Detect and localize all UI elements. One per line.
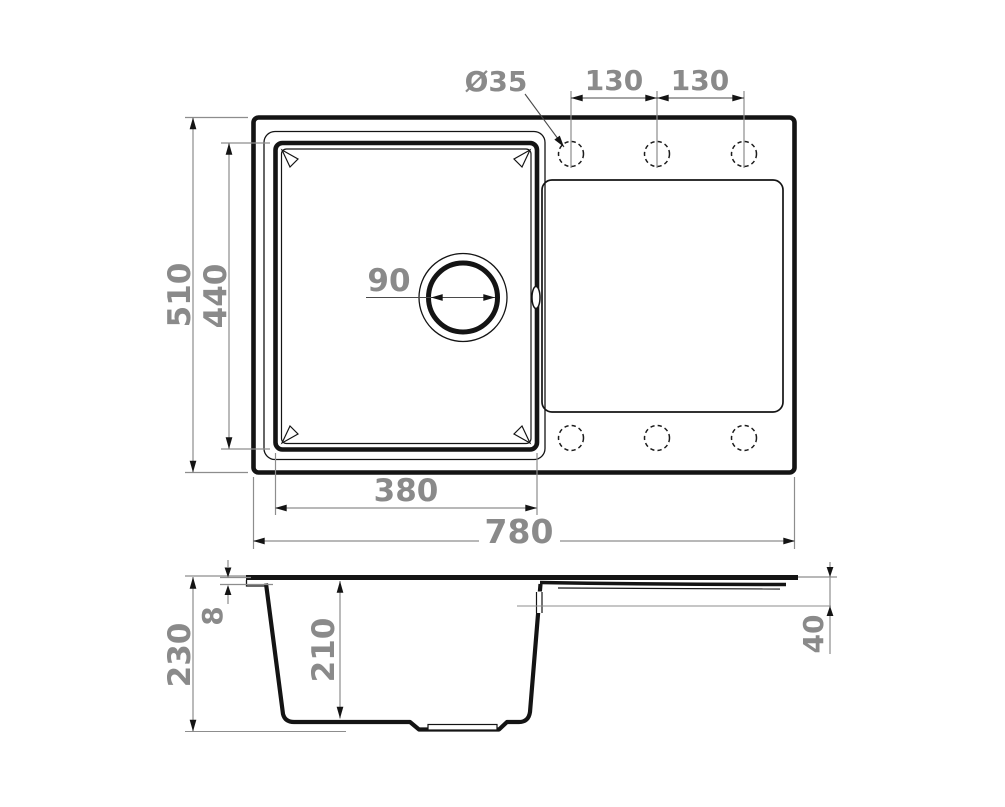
- drainboard-surface: [540, 583, 786, 585]
- arrow-40-top: [827, 567, 834, 577]
- label-210: 210: [306, 618, 342, 683]
- label-510: 510: [162, 263, 198, 328]
- label-8: 8: [196, 606, 229, 625]
- sink-technical-drawing: 130 130 Ø35 510 440 90 380: [0, 0, 1005, 807]
- label-230: 230: [162, 623, 198, 688]
- drain-fitting-plate: [428, 725, 497, 731]
- dim-bowl-inner-depth: 210: [306, 581, 342, 719]
- overflow-slot: [532, 287, 540, 309]
- overflow-section: [535, 592, 545, 614]
- label-780: 780: [485, 512, 554, 551]
- label-130-right: 130: [671, 64, 729, 97]
- dim-drainboard-depth: 40: [797, 562, 837, 654]
- top-view: [254, 118, 795, 473]
- arrow-40-bottom: [827, 606, 834, 616]
- dim-rim-thickness: 8: [196, 560, 273, 626]
- label-40: 40: [797, 615, 830, 654]
- label-hole-diameter: Ø35: [465, 65, 528, 98]
- label-90: 90: [367, 263, 410, 299]
- label-440: 440: [198, 264, 234, 329]
- drawing-canvas: 130 130 Ø35 510 440 90 380: [0, 0, 1005, 807]
- dim-overall-width: 780: [253, 477, 795, 551]
- drainboard-far-edge: [558, 588, 780, 589]
- label-380: 380: [374, 473, 439, 509]
- sink-outer-edge: [254, 118, 795, 473]
- arrow-8-bottom: [225, 585, 232, 595]
- label-130-left: 130: [585, 64, 643, 97]
